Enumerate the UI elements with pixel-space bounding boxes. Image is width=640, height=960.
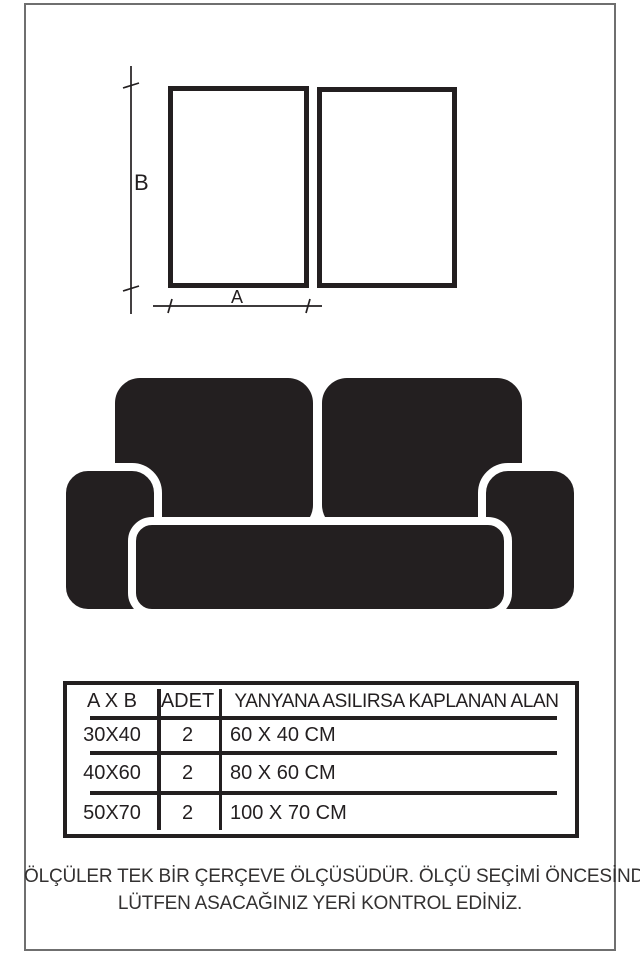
table-cell-size: 30X40 (67, 718, 157, 753)
table-cell-area: 80 X 60 CM (218, 753, 575, 793)
table-header-area: YANYANA ASILIRSA KAPLANAN ALAN (218, 685, 575, 718)
table-cell-qty: 2 (157, 793, 218, 834)
size-table-grid: A X B ADET YANYANA ASILIRSA KAPLANAN ALA… (67, 685, 575, 834)
frame-right (320, 90, 455, 286)
frame-left (171, 89, 307, 286)
height-label: B (134, 170, 149, 195)
table-cell-qty: 2 (157, 718, 218, 753)
sofa-silhouette-icon (62, 378, 578, 613)
sofa-seat-cushion (132, 521, 508, 613)
table-cell-size: 50X70 (67, 793, 157, 834)
diagram-artwork: B A (0, 0, 640, 660)
table-cell-area: 100 X 70 CM (218, 793, 575, 834)
footer-line-2: LÜTFEN ASACAĞINIZ YERİ KONTROL EDİNİZ. (24, 890, 616, 917)
table-header-size: A X B (67, 685, 157, 718)
frame-dimension-diagram: B A (123, 66, 455, 314)
table-cell-qty: 2 (157, 753, 218, 793)
table-header-qty: ADET (157, 685, 218, 718)
width-label: A (231, 287, 243, 307)
size-table: A X B ADET YANYANA ASILIRSA KAPLANAN ALA… (63, 681, 579, 838)
table-cell-size: 40X60 (67, 753, 157, 793)
product-size-infographic: B A A X B ADET YANYANA ASILIRSA KAPLANAN… (0, 0, 640, 960)
footer-disclaimer: ÖLÇÜLER TEK BİR ÇERÇEVE ÖLÇÜSÜDÜR. ÖLÇÜ … (24, 863, 616, 917)
footer-line-1: ÖLÇÜLER TEK BİR ÇERÇEVE ÖLÇÜSÜDÜR. ÖLÇÜ … (24, 863, 616, 890)
table-cell-area: 60 X 40 CM (218, 718, 575, 753)
